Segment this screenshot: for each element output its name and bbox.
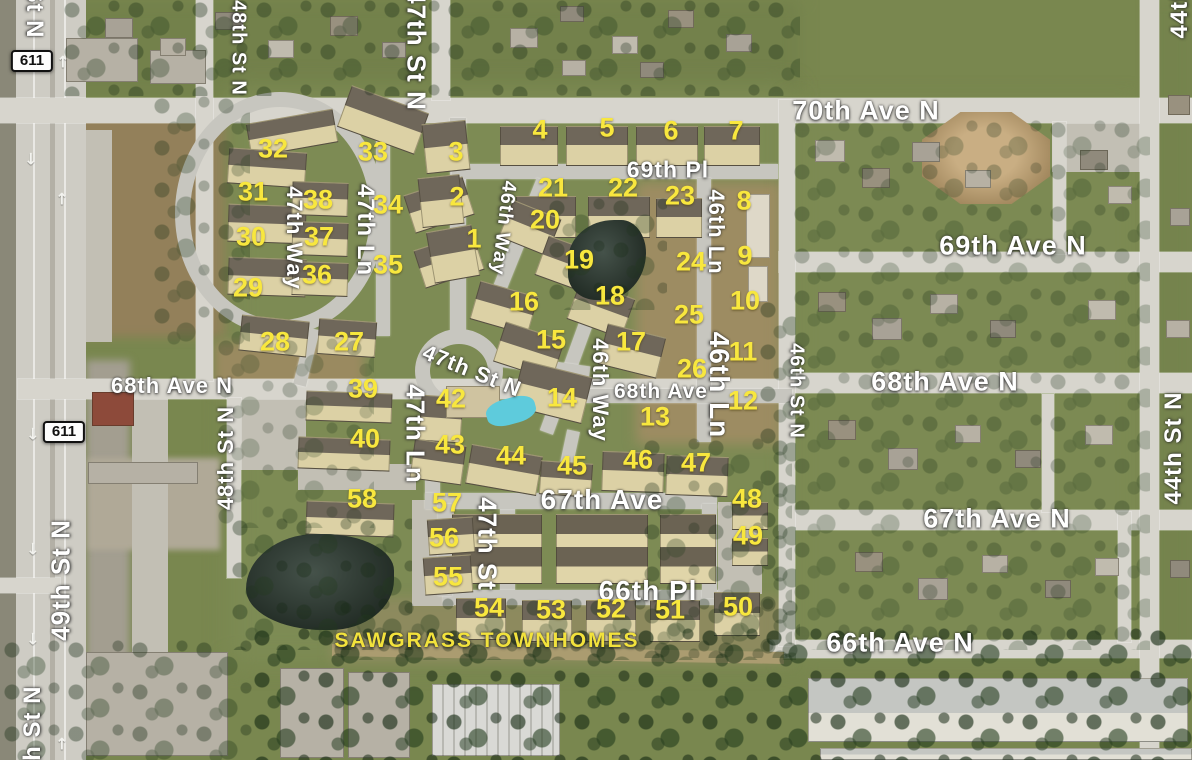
street-label-68th-ave-n: 68th Ave N: [871, 367, 1019, 398]
street-label-49th-st-n: 49th St N: [19, 685, 47, 760]
lot-number-48: 48: [732, 484, 762, 515]
lot-number-36: 36: [302, 260, 332, 291]
lot-number-28: 28: [260, 327, 290, 358]
aerial-map-canvas[interactable]: 70th Ave N69th Ave N68th Ave N67th Ave N…: [0, 0, 1192, 760]
street-label-69th-pl: 69th Pl: [627, 157, 709, 184]
lot-number-6: 6: [663, 116, 678, 147]
lot-number-40: 40: [350, 424, 380, 455]
lot-number-31: 31: [238, 177, 268, 208]
street-label-46th-st-n: 46th St N: [785, 343, 808, 439]
lot-number-49: 49: [733, 521, 763, 552]
street-label-46th-way: 46th Way: [486, 179, 520, 276]
lot-number-10: 10: [730, 286, 760, 317]
traffic-arrow-down: ↓: [26, 630, 39, 649]
lot-number-7: 7: [728, 116, 743, 147]
lot-number-17: 17: [616, 327, 646, 358]
traffic-arrow-down: ↓: [26, 425, 39, 444]
traffic-arrow-down: ↓: [26, 540, 39, 559]
lot-number-3: 3: [448, 137, 463, 168]
lot-number-33: 33: [358, 137, 388, 168]
lot-number-4: 4: [532, 115, 547, 146]
lot-number-50: 50: [723, 592, 753, 623]
street-label-66th-ave-n: 66th Ave N: [826, 628, 974, 659]
route-611-shield: 611: [11, 50, 53, 72]
lot-number-52: 52: [596, 594, 626, 625]
lot-number-26: 26: [677, 354, 707, 385]
street-label-44th-st-n: 44th St N: [1160, 391, 1188, 504]
lot-number-13: 13: [640, 402, 670, 433]
lot-number-35: 35: [373, 250, 403, 281]
lot-number-44: 44: [496, 441, 526, 472]
lot-number-37: 37: [304, 222, 334, 253]
street-label-sawgrass-townhomes: SAWGRASS TOWNHOMES: [334, 629, 639, 653]
lot-number-38: 38: [303, 185, 333, 216]
lot-number-25: 25: [674, 300, 704, 331]
lot-number-51: 51: [655, 595, 685, 626]
lot-number-43: 43: [435, 430, 465, 461]
lot-number-5: 5: [599, 113, 614, 144]
lot-number-24: 24: [676, 247, 706, 278]
street-label-46th-way: 46th Way: [587, 338, 613, 442]
lot-number-22: 22: [608, 173, 638, 204]
street-label-70th-ave-n: 70th Ave N: [792, 96, 940, 127]
lot-number-46: 46: [623, 445, 653, 476]
lot-number-29: 29: [233, 273, 263, 304]
lot-number-27: 27: [334, 327, 364, 358]
lot-number-20: 20: [530, 205, 560, 236]
lot-number-1: 1: [466, 224, 481, 255]
street-label-67th-ave-n: 67th Ave N: [923, 504, 1071, 535]
lot-number-56: 56: [429, 523, 459, 554]
lot-number-39: 39: [348, 374, 378, 405]
lot-number-12: 12: [728, 386, 758, 417]
lot-number-14: 14: [547, 383, 577, 414]
lot-number-47: 47: [681, 448, 711, 479]
street-label-47th-ln: 47th Ln: [400, 384, 431, 483]
labels-layer: 70th Ave N69th Ave N68th Ave N67th Ave N…: [0, 0, 1192, 760]
lot-number-58: 58: [347, 484, 377, 515]
lot-number-34: 34: [373, 190, 403, 221]
street-label-49th-st-n: 49th St N: [46, 519, 77, 641]
lot-number-42: 42: [436, 384, 466, 415]
lot-number-55: 55: [433, 562, 463, 593]
lot-number-8: 8: [736, 186, 751, 217]
lot-number-23: 23: [665, 181, 695, 212]
lot-number-18: 18: [595, 281, 625, 312]
lot-number-32: 32: [258, 134, 288, 165]
street-label-47th-st: 47th St: [472, 497, 503, 591]
street-label-49th-st-n: 49th St N: [20, 0, 48, 39]
lot-number-57: 57: [432, 488, 462, 519]
street-label-44th-st-n: 44th St N: [1166, 0, 1192, 39]
traffic-arrow-up: ↑: [55, 190, 68, 209]
route-611-shield: 611: [43, 421, 85, 443]
lot-number-54: 54: [474, 593, 504, 624]
lot-number-30: 30: [236, 222, 266, 253]
lot-number-15: 15: [536, 325, 566, 356]
lot-number-16: 16: [509, 287, 539, 318]
lot-number-53: 53: [536, 595, 566, 626]
lot-number-2: 2: [449, 182, 464, 213]
street-label-67th-ave: 67th Ave: [541, 484, 664, 516]
lot-number-21: 21: [538, 173, 568, 204]
street-label-48th-st-n: 48th St N: [227, 0, 250, 96]
lot-number-19: 19: [564, 245, 594, 276]
lot-number-45: 45: [557, 451, 587, 482]
traffic-arrow-up: ↑: [55, 735, 68, 754]
street-label-46th-ln: 46th Ln: [703, 189, 729, 274]
lot-number-9: 9: [737, 241, 752, 272]
street-label-47th-st-n: 47th St N: [401, 0, 432, 111]
traffic-arrow-down: ↓: [24, 150, 37, 169]
street-label-68th-ave-n: 68th Ave N: [111, 373, 233, 399]
street-label-47th-st-n: 47th St N: [419, 339, 526, 402]
lot-number-11: 11: [729, 337, 758, 368]
street-label-69th-ave-n: 69th Ave N: [939, 231, 1087, 262]
traffic-arrow-up: ↑: [56, 53, 69, 72]
street-label-48th-st-n: 48th St N: [213, 406, 239, 510]
